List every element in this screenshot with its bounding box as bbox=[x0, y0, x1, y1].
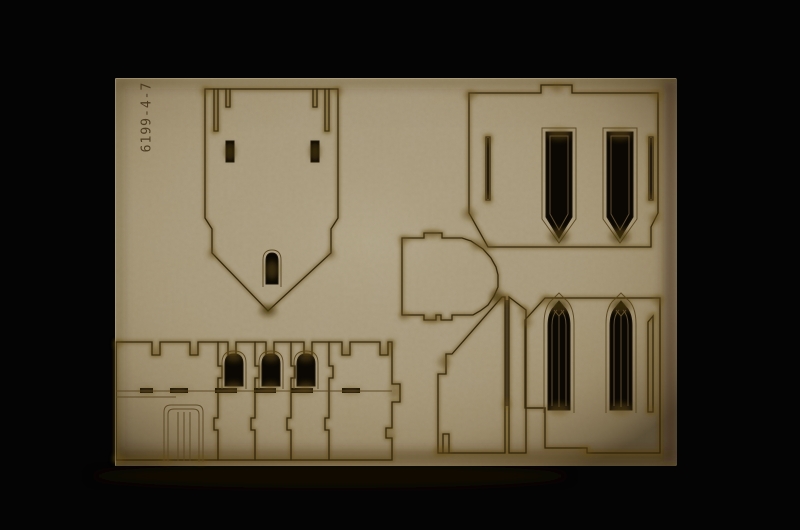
sheet-texture bbox=[115, 78, 677, 466]
sheet-shadow bbox=[90, 464, 570, 488]
etched-part-number: 6199-4-7 bbox=[140, 82, 155, 153]
photo-laser-cut-sheet: 6199-4-7 bbox=[0, 0, 800, 530]
vignette bbox=[115, 78, 677, 466]
mdf-sheet: 6199-4-7 bbox=[113, 78, 677, 466]
scene: 6199-4-7 bbox=[0, 0, 800, 530]
